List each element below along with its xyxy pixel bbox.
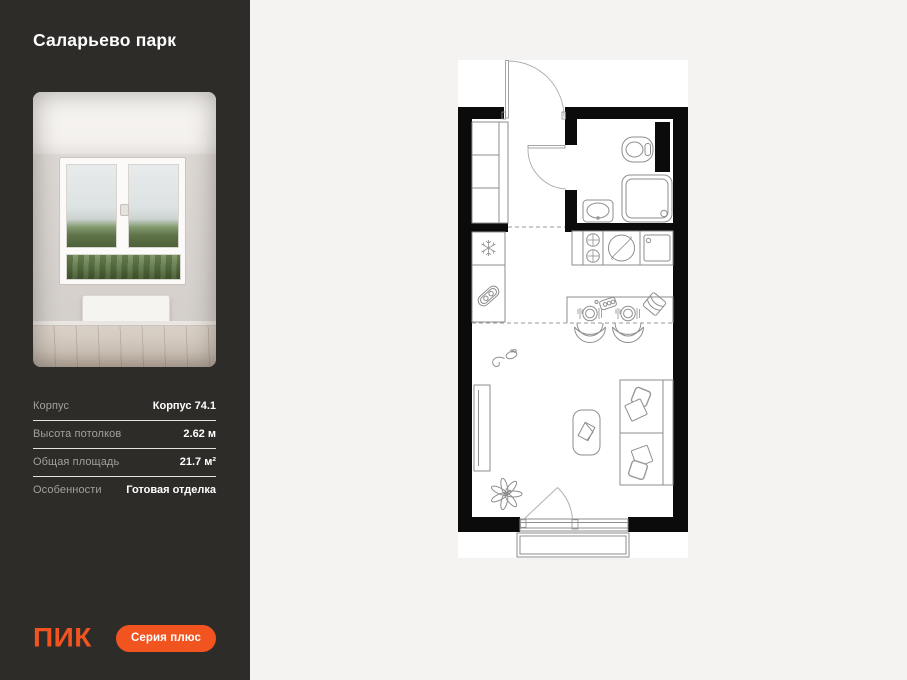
window-handle — [120, 204, 129, 216]
spec-list: Корпус Корпус 74.1 Высота потолков 2.62 … — [33, 393, 216, 504]
spec-label: Высота потолков — [33, 428, 121, 440]
photo-window — [59, 157, 186, 285]
series-plus-button[interactable]: Серия плюс — [116, 625, 216, 652]
entry-door — [502, 61, 566, 120]
spec-label: Особенности — [33, 484, 102, 496]
spec-value: 21.7 м² — [180, 456, 216, 468]
spec-value: 2.62 м — [183, 428, 216, 440]
dining-table — [567, 292, 673, 323]
spec-row-korpus: Корпус Корпус 74.1 — [33, 393, 216, 421]
floorplan-svg — [458, 60, 688, 558]
balcony — [517, 533, 629, 557]
photo-ceiling — [33, 92, 216, 154]
mouse-toy-icon — [493, 348, 519, 366]
tv-unit — [474, 385, 490, 471]
sofa-bed — [620, 380, 673, 485]
window-transom-trees — [66, 254, 181, 280]
window-pane-right — [128, 164, 179, 248]
spec-label: Корпус — [33, 400, 69, 412]
spec-row-features: Особенности Готовая отделка — [33, 477, 216, 504]
chair — [575, 323, 606, 342]
pik-logo: ПИК — [33, 625, 92, 652]
photo-radiator — [82, 295, 170, 324]
sidebar-footer: ПИК Серия плюс — [33, 624, 216, 652]
spec-value: Корпус 74.1 — [153, 400, 216, 412]
balcony-door — [520, 488, 628, 532]
bathroom-sink — [583, 200, 613, 222]
project-title: Саларьево парк — [33, 30, 216, 51]
kitchen-counter — [572, 231, 673, 265]
bathroom-shower — [622, 175, 672, 222]
apartment-photo — [33, 92, 216, 367]
coffee-table — [573, 410, 600, 455]
spec-value: Готовая отделка — [126, 484, 216, 496]
spec-row-ceiling-height: Высота потолков 2.62 м — [33, 421, 216, 449]
kitchen-left-column — [472, 232, 505, 322]
plant-icon — [490, 478, 522, 511]
window-pane-left — [66, 164, 117, 248]
spec-label: Общая площадь — [33, 456, 119, 468]
photo-wood-floor — [33, 326, 216, 367]
floorplan — [458, 60, 688, 558]
duct-shaft — [655, 122, 670, 172]
bathroom-toilet — [622, 137, 653, 162]
spec-row-total-area: Общая площадь 21.7 м² — [33, 449, 216, 477]
bathroom-door — [528, 146, 566, 190]
sidebar: Саларьево парк Корпус Корпус 74.1 Высота… — [0, 0, 250, 680]
chair — [613, 323, 644, 342]
wardrobe — [472, 122, 508, 223]
plan-area — [250, 0, 907, 680]
